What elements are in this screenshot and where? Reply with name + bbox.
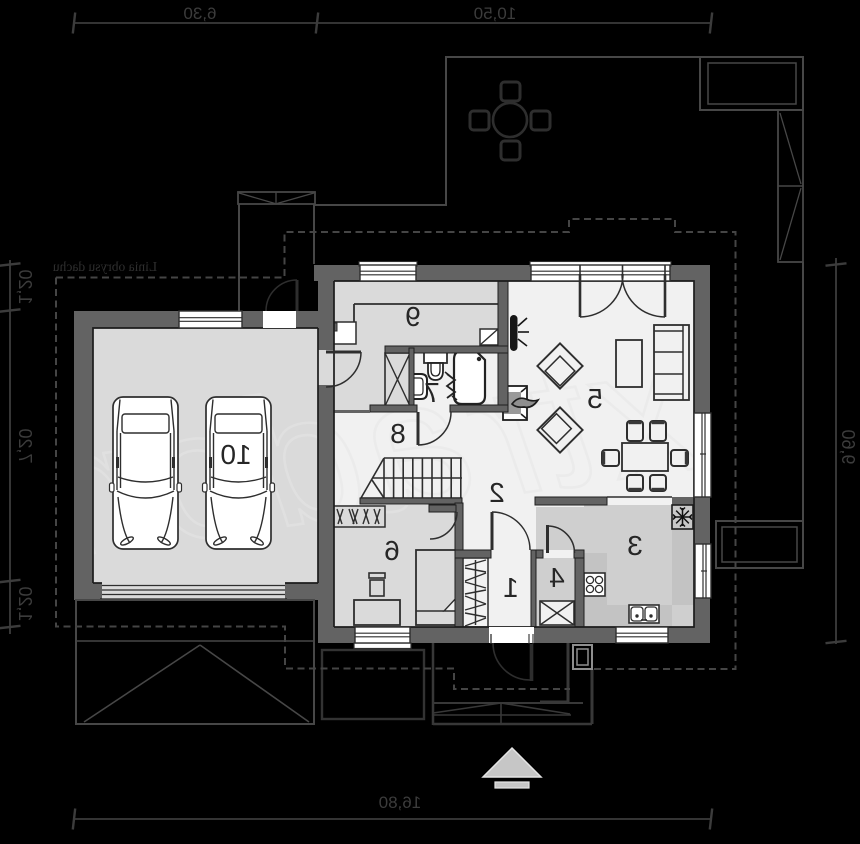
svg-text:3: 3	[627, 530, 643, 561]
svg-text:1,20: 1,20	[15, 586, 35, 621]
svg-text:2: 2	[489, 477, 505, 508]
svg-text:7: 7	[424, 377, 440, 408]
svg-text:6: 6	[384, 535, 400, 566]
svg-text:5: 5	[587, 383, 603, 414]
svg-text:9,60: 9,60	[838, 429, 858, 464]
svg-text:1: 1	[503, 572, 519, 603]
svg-text:6,30: 6,30	[183, 4, 216, 23]
svg-text:9: 9	[405, 301, 421, 332]
svg-text:10: 10	[220, 439, 251, 470]
svg-text:10,50: 10,50	[474, 4, 517, 23]
svg-text:7,20: 7,20	[15, 428, 35, 463]
svg-text:Linia obrysu dachu: Linia obrysu dachu	[53, 259, 157, 274]
svg-text:16,80: 16,80	[379, 793, 422, 812]
svg-text:8: 8	[390, 418, 406, 449]
svg-text:4: 4	[549, 562, 565, 593]
svg-text:1,20: 1,20	[15, 269, 35, 304]
